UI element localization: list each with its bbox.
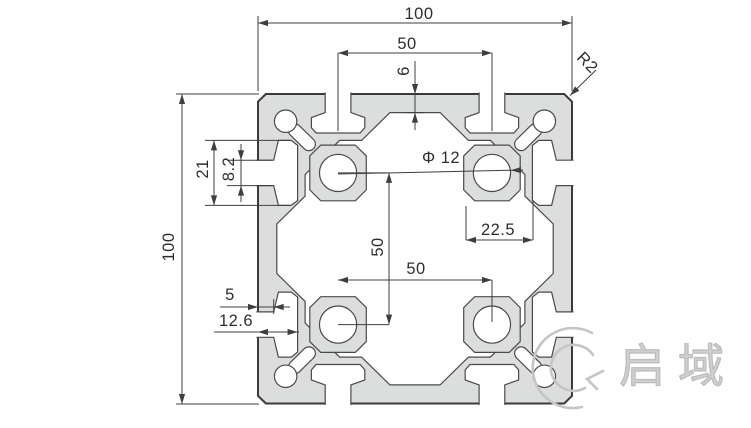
dim-slot-lip-depth: 5: [225, 287, 235, 304]
dim-top-slot-spacing: 50: [397, 36, 416, 53]
dim-side-slot-inner-width: 21: [195, 159, 212, 178]
profile-shape: [256, 93, 573, 406]
dim-top-wall-thickness: 6: [396, 66, 413, 76]
dim-side-slot-opening: 8.2: [221, 157, 238, 181]
dim-hole-spacing-horizontal: 50: [406, 261, 425, 278]
dim-hole-spacing-vertical: 50: [370, 237, 387, 256]
watermark-logo-text: 启域: [619, 343, 737, 389]
dim-top-width: 100: [404, 6, 433, 23]
dim-web-width: 22.5: [481, 222, 515, 239]
technical-drawing-canvas: 100 50 6 R2 21 8.2 100 Φ 12 22.5 50 50 5…: [0, 0, 751, 428]
dim-hole-diameter: Φ 12: [422, 150, 460, 167]
dim-left-height: 100: [161, 232, 178, 261]
dim-slot-depth: 12.6: [219, 313, 253, 330]
